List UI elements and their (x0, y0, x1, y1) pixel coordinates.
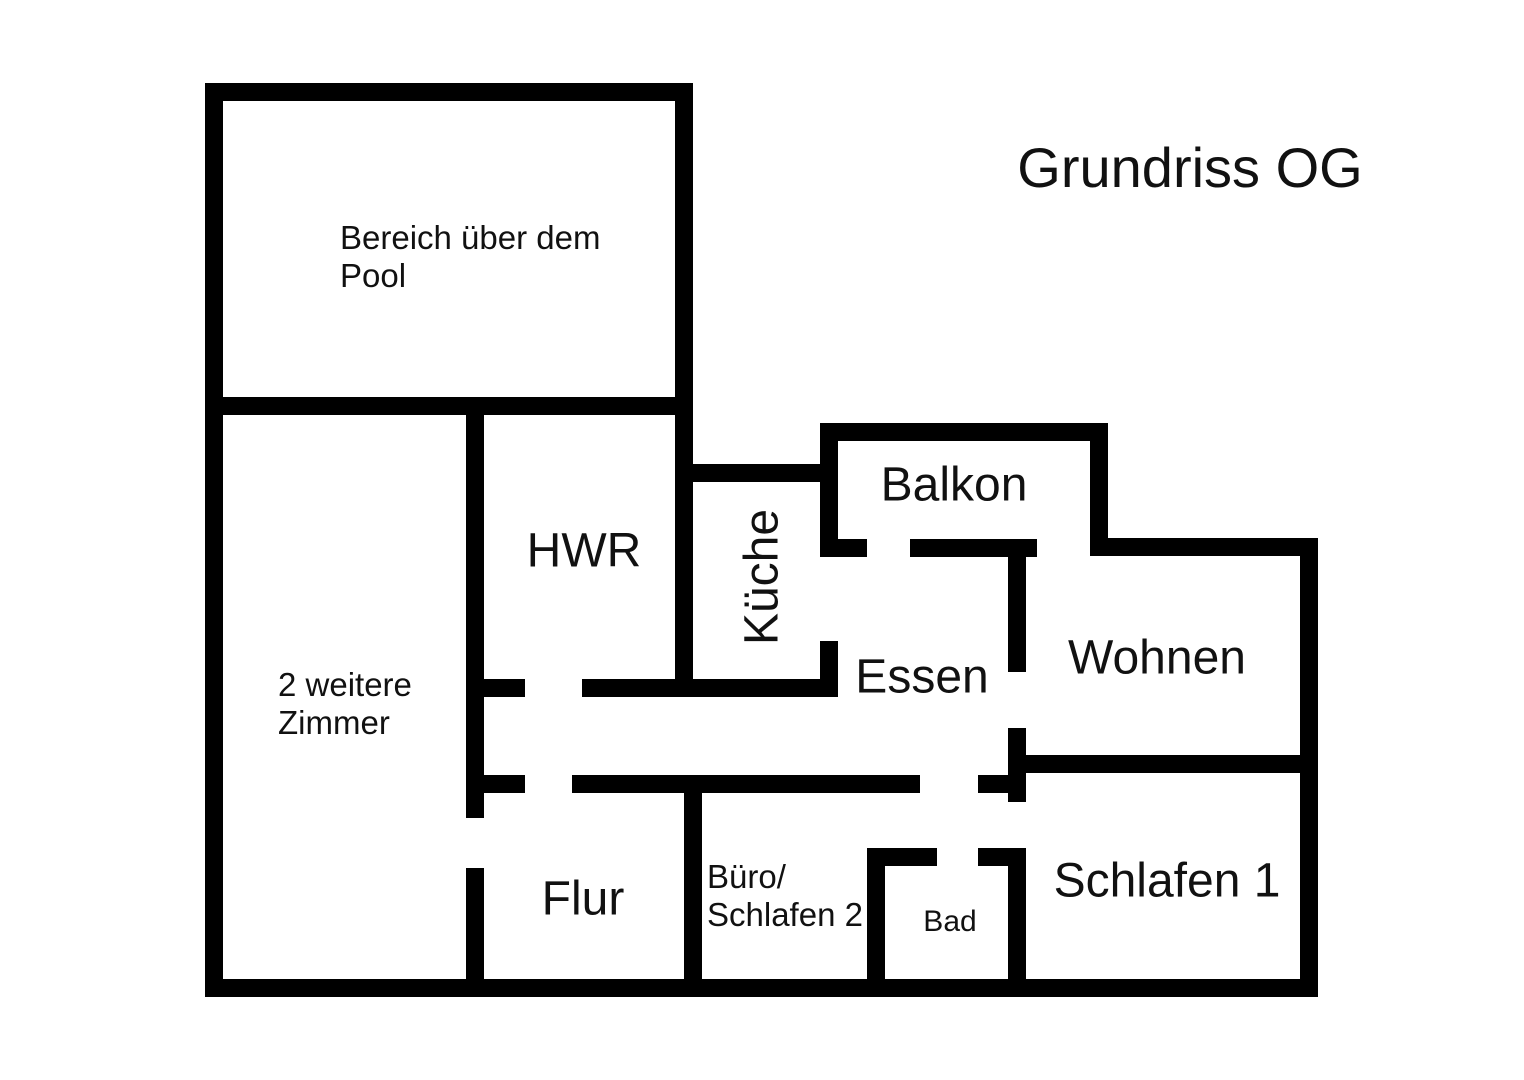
room-label-bereich: Bereich über dem Pool (340, 219, 600, 294)
room-label-bad: Bad (923, 905, 976, 939)
room-label-buero: Büro/ Schlafen 2 (707, 858, 863, 933)
wall-segment-balkon-top-wall (820, 423, 1108, 441)
wall-segment-outer-bottom-wall (205, 979, 1318, 997)
wall-segment-pool-box-bottom-wall (205, 397, 693, 415)
room-label-essen: Essen (855, 651, 988, 706)
wall-segment-bad-left-wall (867, 848, 885, 997)
room-label-balkon: Balkon (881, 459, 1028, 514)
wall-segment-kueche-top-wall (675, 464, 838, 482)
room-label-zimmer: 2 weitere Zimmer (278, 666, 412, 741)
room-label-kueche: Küche (736, 509, 791, 645)
wall-segment-flur-buero-divider (684, 775, 702, 997)
page-title: Grundriss OG (1017, 136, 1362, 200)
wall-segment-balkon-bottom-stub-left (820, 539, 867, 557)
wall-segment-corridor-lower-wall (572, 775, 920, 793)
wall-segment-corridor-lower-stub (466, 775, 525, 793)
wall-segment-balkon-left-wall (820, 423, 838, 557)
wall-segment-essen-wohnen-divider-mid (1008, 728, 1026, 802)
wall-segment-balkon-right-wall (1090, 423, 1108, 556)
room-label-hwr: HWR (527, 525, 642, 580)
wall-segment-pool-hwr-right-wall (675, 83, 693, 697)
room-label-schlafen1: Schlafen 1 (1054, 855, 1281, 910)
wall-segment-outer-left-wall (205, 83, 223, 997)
wall-segment-essen-wohnen-divider-upper (1008, 556, 1026, 672)
room-label-wohnen: Wohnen (1068, 632, 1246, 687)
wall-segment-bad-right-wall (1008, 848, 1026, 997)
wall-segment-wohnen-top-outer-wall (1090, 538, 1318, 556)
wall-segment-balkon-bottom-segment (910, 539, 1037, 557)
floorplan-canvas: Grundriss OGBereich über dem Pool2 weite… (0, 0, 1524, 1080)
wall-segment-hwr-kueche-bottom-wall (582, 679, 838, 697)
wall-segment-bad-top-left-stub (867, 848, 937, 866)
wall-segment-pool-box-top-wall (205, 83, 693, 101)
wall-segment-zimmer-divider-lower (466, 868, 484, 997)
room-label-flur: Flur (542, 873, 625, 928)
wall-segment-zimmer-divider-upper (466, 397, 484, 818)
wall-segment-wohnen-bottom-wall (1026, 755, 1318, 773)
wall-segment-corridor-upper-stub (466, 679, 525, 697)
